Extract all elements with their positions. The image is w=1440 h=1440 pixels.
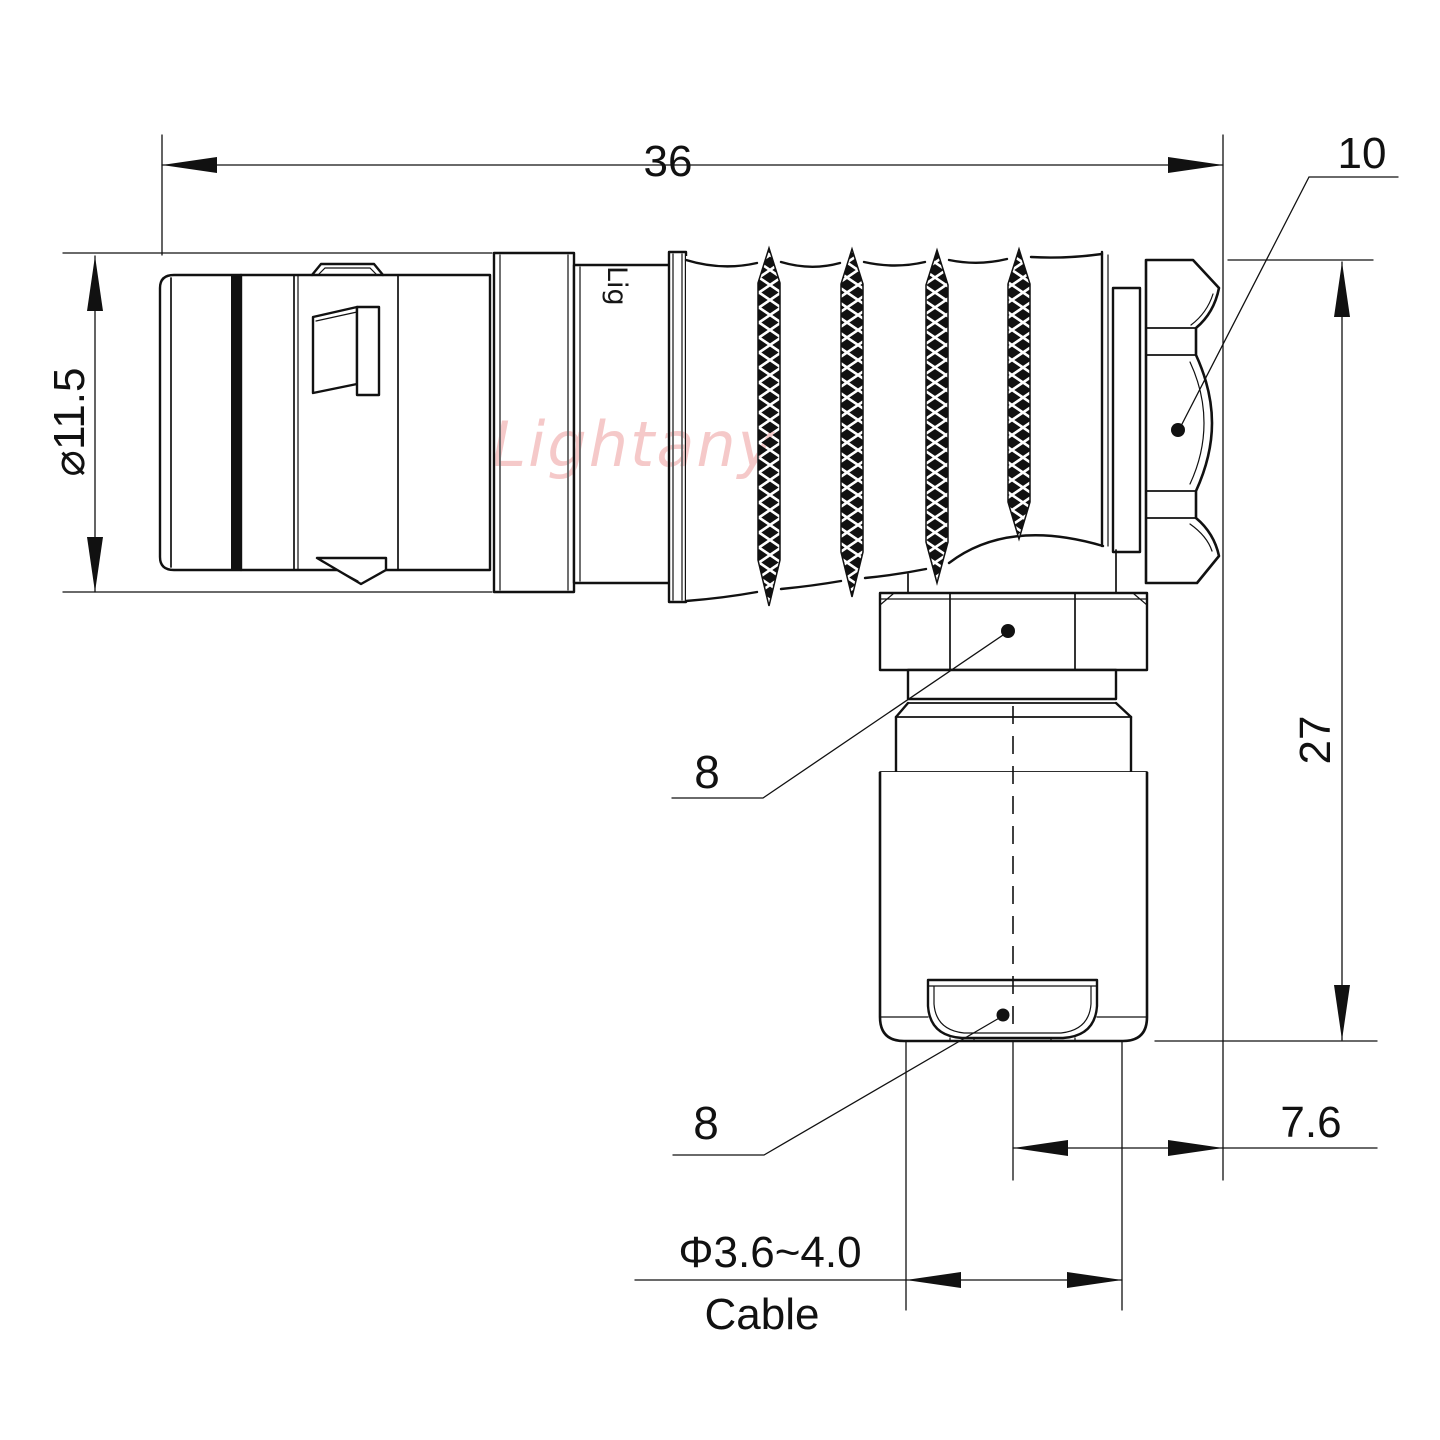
watermark-text: Lightany xyxy=(492,408,777,481)
dim-cable-range-label: Φ3.6~4.0 xyxy=(678,1228,861,1277)
cable-word-label: Cable xyxy=(705,1290,820,1339)
leader-dot xyxy=(1171,423,1185,437)
dimension-axis-to-face: 7.6 xyxy=(1013,1042,1377,1180)
index-stripe xyxy=(231,275,241,570)
washer-step xyxy=(1113,288,1140,552)
callout-10-label: 10 xyxy=(1338,129,1387,178)
latch-tab xyxy=(357,307,379,395)
leader-dot xyxy=(997,1009,1010,1022)
connector-drawing-svg: Lig xyxy=(0,0,1440,1440)
dim-front-diameter-label: ⌀11.5 xyxy=(45,368,94,477)
dim-height-label: 27 xyxy=(1291,716,1340,765)
knurl-ring-2 xyxy=(841,249,863,597)
cable-side-assembly xyxy=(880,550,1147,1041)
key-bump xyxy=(312,264,383,275)
knurl-ring-4 xyxy=(1008,249,1030,539)
dim-overall-length-label: 36 xyxy=(644,137,693,186)
technical-drawing-page: Lig xyxy=(0,0,1440,1440)
coupling-nut xyxy=(1146,260,1219,583)
front-cap xyxy=(160,275,241,570)
dimension-cable-range: Φ3.6~4.0 Cable xyxy=(635,1042,1122,1339)
callout-8-upper-label: 8 xyxy=(694,746,720,798)
callout-8-lower-label: 8 xyxy=(693,1097,719,1149)
body-engraving-text: Lig xyxy=(601,266,632,306)
knurl-ring-3 xyxy=(926,250,948,583)
spacer-ring xyxy=(908,670,1116,699)
dim-axis-to-face-label: 7.6 xyxy=(1280,1098,1341,1147)
leader-dot xyxy=(1001,624,1015,638)
